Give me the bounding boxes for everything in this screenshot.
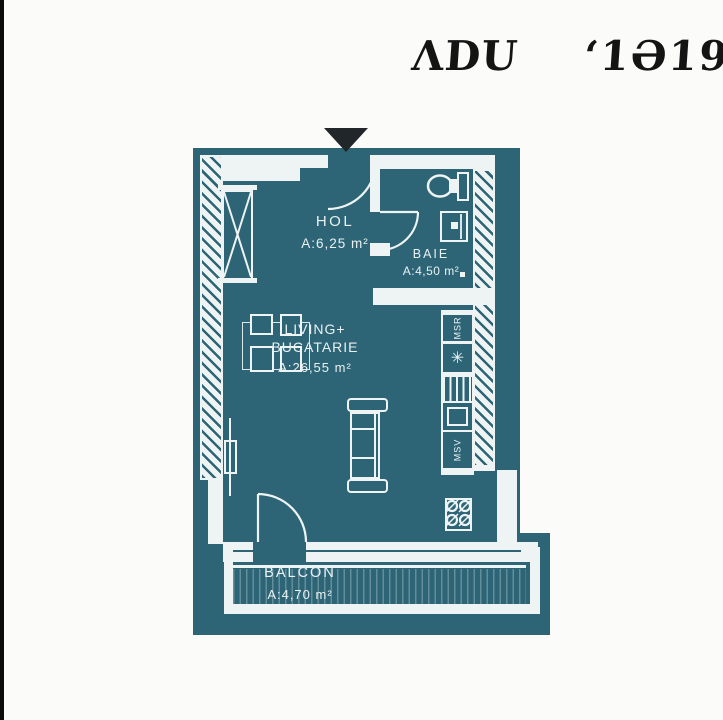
exterior-wall-right [473, 169, 495, 469]
entrance-door-jamb [300, 155, 328, 168]
room-label-living: LIVING+ BUCATARIE [253, 320, 377, 356]
sofa-armrest-top [347, 398, 388, 412]
kitchen-sink-drainer [443, 377, 472, 401]
balcony-wall-bottom [224, 604, 540, 614]
sofa-cushion-line [351, 457, 375, 459]
room-label-hol: HOL [275, 213, 395, 230]
cooktop [445, 498, 472, 531]
wardrobe-cap-bottom [218, 278, 257, 283]
page-left-border [0, 0, 4, 720]
sofa-armrest-bottom [347, 479, 388, 493]
wall-cap-right [473, 465, 495, 471]
wardrobe [222, 190, 253, 280]
boiler: ✳ [443, 344, 472, 372]
sofa-cushion-line [351, 428, 375, 430]
dishwasher-label: MSV [440, 436, 476, 465]
wall-left-lower [208, 480, 223, 544]
radiator [224, 440, 237, 474]
room-label-baie: BAIE [385, 247, 477, 261]
room-area-balcon: A:4,70 m² [243, 587, 357, 602]
sink-tap [451, 222, 458, 229]
kitchen-sink-basin-inner [447, 407, 468, 426]
entrance-arrow-icon [324, 128, 368, 152]
floor-plan: MSR ✳ MSV [193, 128, 553, 640]
watermark-left: ΛDU [410, 34, 519, 78]
toilet-tank [457, 172, 469, 201]
kitchen-sink-basin [443, 403, 472, 430]
room-area-hol: A:6,25 m² [275, 236, 395, 251]
washing-machine: MSR [443, 315, 472, 341]
balcony-door-opening [253, 542, 306, 562]
living-line2: BUCATARIE [271, 339, 358, 355]
bathroom-south-wall [373, 288, 495, 305]
bathroom-north-wall [380, 155, 495, 169]
bathroom-west-wall [370, 155, 380, 212]
toilet-seat-hinge [449, 179, 457, 193]
room-label-balcon: BALCON [243, 565, 357, 581]
watermark-right: ‘1Ə19 [582, 34, 723, 78]
exterior-wall-left [200, 155, 223, 480]
room-area-baie: A:4,50 m² [385, 264, 477, 278]
room-area-living: A:26,55 m² [253, 360, 377, 375]
washing-machine-label: MSR [445, 314, 471, 343]
wall-top-left [223, 155, 300, 181]
sofa-backrest [374, 413, 376, 478]
dishwasher: MSV [443, 432, 472, 468]
living-line1: LIVING+ [284, 321, 345, 337]
boiler-icon: ✳ [451, 348, 464, 368]
wall-right-lower [497, 470, 517, 545]
balcony-wall-right [530, 547, 540, 604]
